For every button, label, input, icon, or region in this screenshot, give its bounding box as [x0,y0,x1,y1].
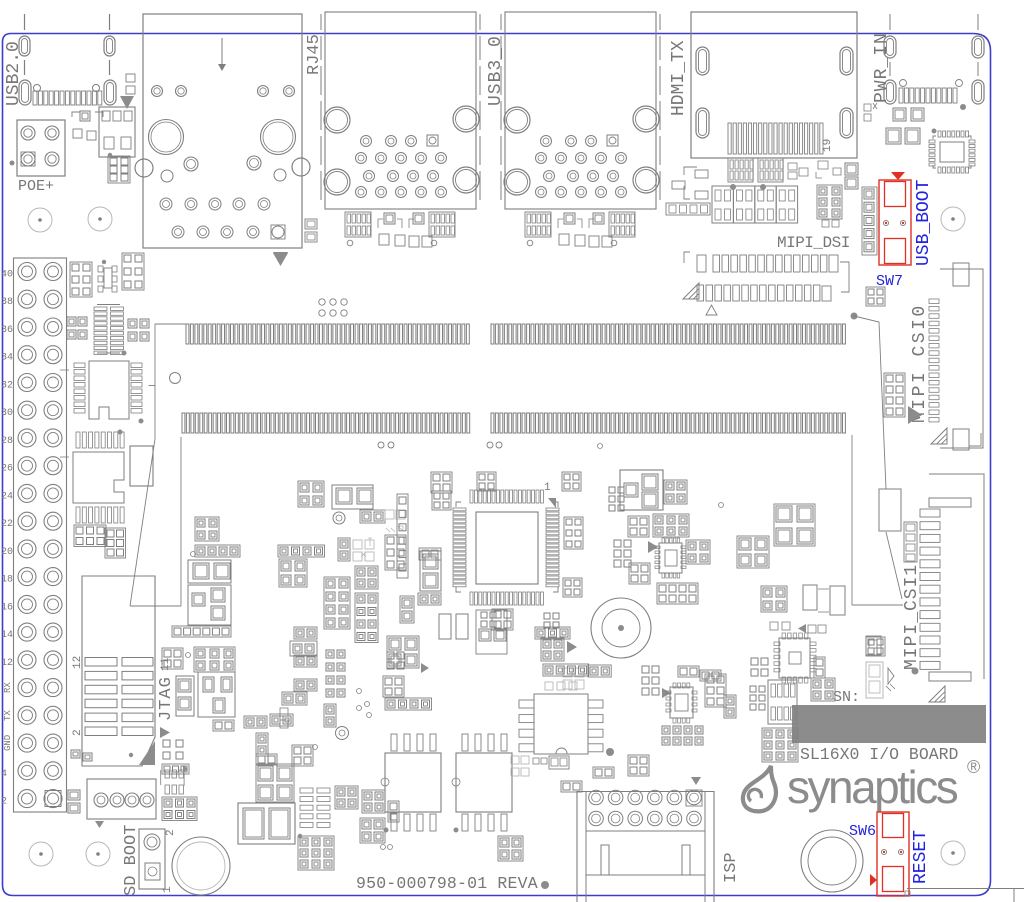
svg-text:22: 22 [1,519,13,530]
svg-text:18: 18 [1,575,13,586]
svg-text:USB3_0: USB3_0 [486,35,506,106]
svg-text:950-000798-01 REVA: 950-000798-01 REVA [356,874,538,893]
svg-text:36: 36 [1,325,13,336]
svg-text:38: 38 [1,297,13,308]
svg-text:GND: GND [3,735,13,751]
svg-text:26: 26 [1,464,13,475]
svg-text:TX: TX [3,710,13,721]
svg-text:RX: RX [3,682,13,693]
svg-text:2: 2 [165,829,177,836]
svg-text:MIPI_CSI1: MIPI_CSI1 [902,564,922,670]
svg-text:2: 2 [72,729,84,736]
svg-text:HDMI_TX: HDMI_TX [669,40,689,116]
svg-text:®: ® [967,757,980,777]
svg-text:12: 12 [1,658,13,669]
svg-text:MIPI CSI0: MIPI CSI0 [910,303,930,423]
svg-text:14: 14 [1,630,13,641]
svg-text:USB2.0: USB2.0 [4,41,24,106]
svg-text:28: 28 [1,436,13,447]
svg-text:34: 34 [1,353,13,364]
svg-text:PWR_IN: PWR_IN [872,32,892,103]
svg-text:1: 1 [162,886,174,893]
svg-text:SD BOOT: SD BOOT [122,825,141,896]
svg-text:POE+: POE+ [18,178,54,195]
svg-text:USB_BOOT: USB_BOOT [914,179,934,266]
svg-text:SW7: SW7 [876,273,903,290]
svg-text:SW6: SW6 [849,823,876,840]
svg-text:JTAG: JTAG [157,676,176,721]
svg-text:12: 12 [72,656,84,669]
svg-text:1: 1 [544,482,551,494]
svg-text:ISP: ISP [722,852,741,883]
svg-text:32: 32 [1,380,13,391]
svg-text:4: 4 [1,769,7,780]
svg-text:24: 24 [1,491,13,502]
svg-text:19: 19 [822,139,834,152]
svg-text:MIPI_DSI: MIPI_DSI [777,234,850,252]
svg-text:SN:: SN: [833,689,860,706]
svg-text:20: 20 [1,547,13,558]
svg-text:16: 16 [1,602,13,613]
svg-text:40: 40 [1,270,13,281]
svg-text:30: 30 [1,408,13,419]
svg-text:2: 2 [1,797,7,808]
svg-text:RESET: RESET [911,830,931,884]
svg-text:synaptics: synaptics [787,761,958,813]
